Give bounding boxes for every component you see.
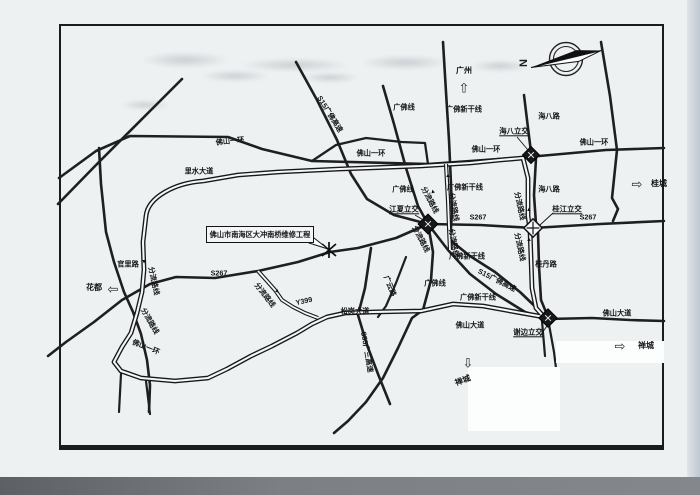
road-label: 广佛线 <box>393 103 415 110</box>
road-label: 官里路 <box>117 260 139 267</box>
interchange-label: 海八立交 <box>499 127 529 136</box>
road-label: 分流路线 <box>253 281 276 308</box>
project-callout-text: 佛山市南海区大冲南桥维修工程 <box>210 230 311 240</box>
destination-label: 桂城 <box>651 180 667 188</box>
interchange-label: 谢边立交 <box>513 328 543 337</box>
flow-arrow-icon: ▲ <box>445 173 451 179</box>
direction-arrow-down-icon: ⇩ <box>463 357 474 370</box>
interchange-label: 江夏立交 <box>389 205 419 214</box>
road-label: 佛山一环 <box>357 149 386 156</box>
road-label: S15广佛高速 <box>316 94 344 133</box>
labels-layer: 佛山一环S15广佛高速广佛线广佛新干线海八路佛山一环佛山一环佛山一环里水大道广佛… <box>0 0 700 495</box>
road-label: 广佛新干线 <box>446 105 482 112</box>
road-label: 分流路线 <box>448 192 460 222</box>
road-label: S55广三高速 <box>360 331 374 373</box>
road-label: 广佛新干线 <box>460 293 496 300</box>
road-label: 分流路线 <box>147 266 160 296</box>
destination-label: 广州 <box>456 67 472 75</box>
destination-label: 禅城 <box>638 342 654 350</box>
road-label: S267 <box>470 213 487 220</box>
flow-arrow-icon: ▲ <box>526 207 532 213</box>
road-label: 里水大道 <box>185 167 214 174</box>
road-label: 广佛新干线 <box>449 252 485 259</box>
flow-arrow-icon: ▲ <box>141 258 147 264</box>
scan-bottom-band <box>0 477 700 495</box>
road-label: 佛山一环 <box>215 136 244 146</box>
direction-arrow-left-icon: ⇦ <box>108 283 119 296</box>
road-label: 松岗大道 <box>341 307 370 314</box>
road-label: 佛山一环 <box>131 338 160 355</box>
road-label: S267 <box>580 213 597 220</box>
direction-arrow-right-icon: ⇨ <box>632 178 643 191</box>
road-label: 广云路 <box>383 275 398 298</box>
road-label: 佛山大道 <box>603 309 632 316</box>
paper-edge-shadow <box>687 0 700 495</box>
road-label: 佛山一环 <box>472 145 501 152</box>
flow-arrow-icon: ▲ <box>273 287 281 295</box>
road-label: 佛山一环 <box>580 138 609 145</box>
road-label: S267 <box>211 269 228 276</box>
flow-arrow-icon: ▲ <box>526 237 532 243</box>
road-label: 佛山大道 <box>456 321 485 328</box>
road-label: 分流路线 <box>513 191 526 221</box>
road-label: 广佛线 <box>392 185 414 192</box>
flow-arrow-icon: ▲ <box>429 188 436 195</box>
destination-label: 禅城 <box>454 375 472 388</box>
road-label: 分流路线 <box>411 225 431 254</box>
scanned-map-page: N 佛山市南海区大冲南桥维修工程 佛山一环S15广佛高速广佛线广佛新干线海八路佛… <box>0 0 700 495</box>
project-callout: 佛山市南海区大冲南桥维修工程 <box>206 226 314 243</box>
road-label: 广佛线 <box>424 279 446 286</box>
road-label: Y399 <box>295 296 313 307</box>
road-label: S15广佛高速 <box>477 267 517 292</box>
interchange-label: 桂江立交 <box>552 205 582 214</box>
road-label: 广佛新干线 <box>447 183 483 190</box>
road-label: 海八路 <box>538 112 560 119</box>
direction-arrow-up-icon: ⇧ <box>459 82 470 95</box>
direction-arrow-right-icon: ⇨ <box>615 340 626 353</box>
road-label: 分流路线 <box>140 307 161 336</box>
road-label: 桂丹路 <box>535 260 557 267</box>
destination-label: 花都 <box>86 284 102 292</box>
road-label: 海八路 <box>538 185 560 192</box>
road-label: 分流路线 <box>513 232 526 262</box>
